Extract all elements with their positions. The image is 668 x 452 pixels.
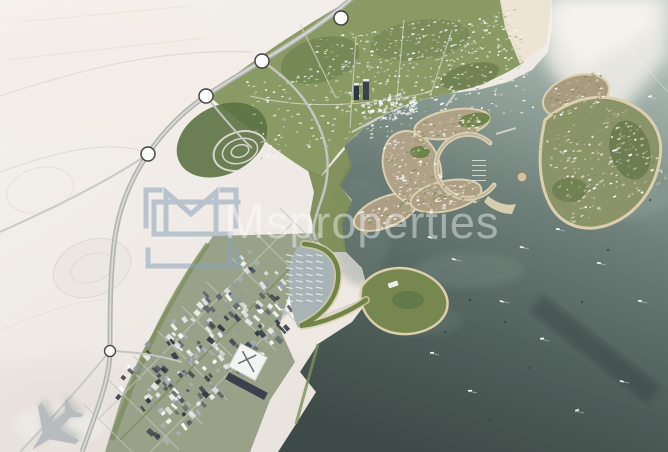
aerial-masterplan-photo: MS Msproperties	[0, 0, 668, 452]
watermark-brand-text: Msproperties	[224, 194, 499, 250]
